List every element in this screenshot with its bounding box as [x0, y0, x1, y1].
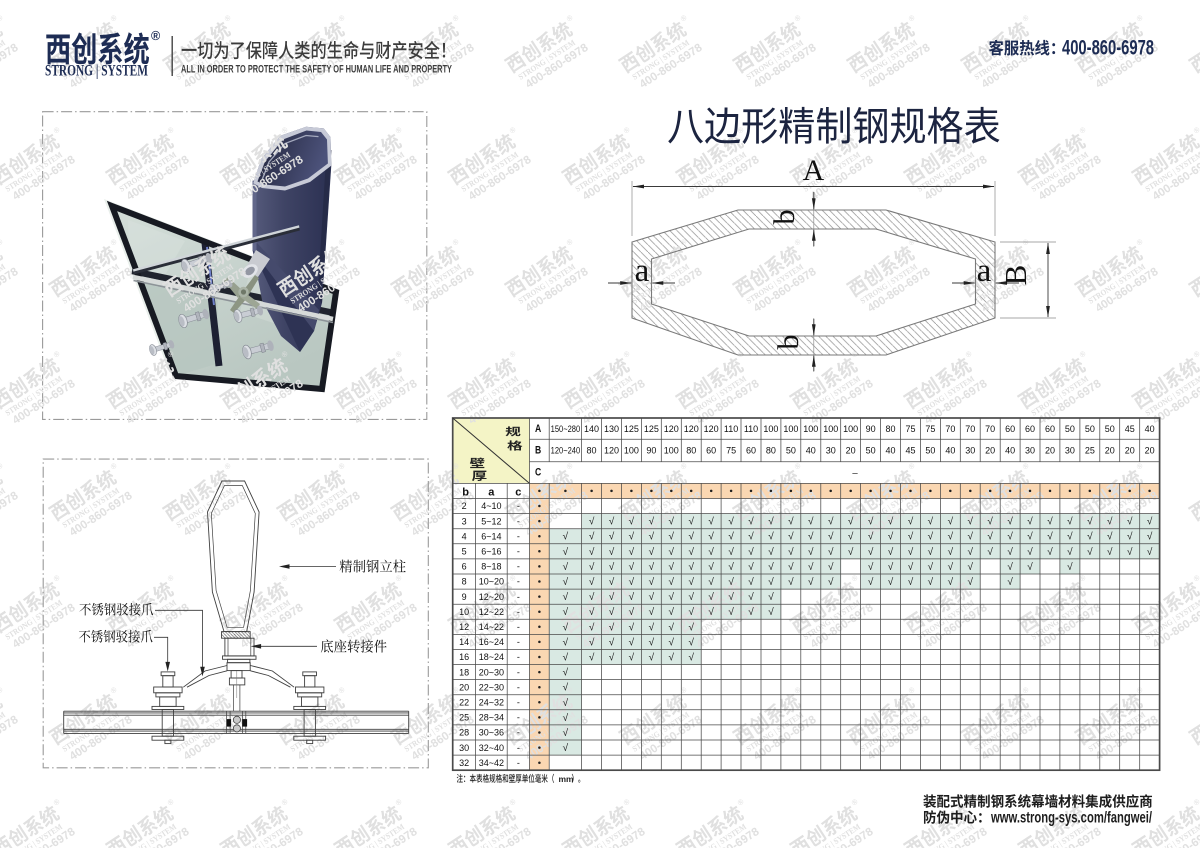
svg-text:120: 120 [664, 424, 679, 434]
svg-text:√: √ [629, 561, 635, 573]
svg-text:30~36: 30~36 [479, 728, 504, 738]
svg-text:18~24: 18~24 [479, 652, 504, 662]
svg-text:6: 6 [462, 562, 467, 572]
svg-text:30: 30 [965, 446, 975, 456]
svg-text:24~32: 24~32 [479, 697, 504, 707]
svg-text:20: 20 [1105, 446, 1115, 456]
svg-text:√: √ [928, 531, 934, 543]
svg-text:√: √ [708, 591, 714, 603]
svg-text:40: 40 [806, 446, 816, 456]
svg-text:√: √ [968, 576, 974, 588]
svg-text:ALL IN ORDER TO PROTECT THE SA: ALL IN ORDER TO PROTECT THE SAFETY OF HU… [181, 64, 452, 76]
svg-text:10~20: 10~20 [479, 577, 504, 587]
svg-text:√: √ [1067, 561, 1073, 573]
svg-text:√: √ [669, 516, 675, 528]
svg-text:√: √ [589, 576, 595, 588]
svg-text:√: √ [669, 591, 675, 603]
svg-text:√: √ [808, 546, 814, 558]
svg-text:45: 45 [1125, 424, 1135, 434]
svg-text:√: √ [768, 546, 774, 558]
svg-text:√: √ [1027, 546, 1033, 558]
svg-text:√: √ [609, 651, 615, 663]
svg-text:√: √ [808, 576, 814, 588]
svg-text:30: 30 [1065, 446, 1075, 456]
svg-text:100: 100 [803, 424, 818, 434]
svg-text:√: √ [649, 531, 655, 543]
svg-text:√: √ [563, 621, 569, 633]
svg-text:50: 50 [786, 446, 796, 456]
svg-text:18: 18 [459, 667, 469, 677]
svg-text:√: √ [1007, 561, 1013, 573]
svg-text:√: √ [708, 606, 714, 618]
svg-text:25: 25 [459, 713, 469, 723]
svg-text:√: √ [848, 546, 854, 558]
svg-text:√: √ [1147, 516, 1153, 528]
svg-text:c: c [515, 487, 521, 499]
svg-text:√: √ [1127, 516, 1133, 528]
svg-text:√: √ [649, 546, 655, 558]
svg-text:√: √ [908, 576, 914, 588]
svg-text:8~18: 8~18 [481, 562, 501, 572]
svg-text:6~16: 6~16 [481, 547, 501, 557]
svg-text:50: 50 [925, 446, 935, 456]
svg-text:√: √ [768, 561, 774, 573]
svg-text:22~30: 22~30 [479, 682, 504, 692]
svg-text:√: √ [1067, 516, 1073, 528]
svg-text:-: - [517, 728, 520, 738]
svg-text:√: √ [669, 531, 675, 543]
svg-text:√: √ [708, 531, 714, 543]
svg-text:-: - [517, 622, 520, 632]
svg-text:12~22: 12~22 [479, 607, 504, 617]
svg-text:√: √ [848, 531, 854, 543]
svg-text:-: - [517, 697, 520, 707]
svg-text:√: √ [1047, 516, 1053, 528]
svg-text:400-860-6978: 400-860-6978 [1062, 37, 1154, 60]
svg-text:√: √ [609, 546, 615, 558]
svg-text:√: √ [688, 561, 694, 573]
svg-text:√: √ [987, 516, 993, 528]
svg-text:√: √ [828, 546, 834, 558]
svg-text:√: √ [649, 561, 655, 573]
svg-text:√: √ [968, 561, 974, 573]
svg-text:√: √ [563, 591, 569, 603]
svg-text:50: 50 [866, 446, 876, 456]
svg-text:√: √ [987, 546, 993, 558]
svg-text:√: √ [828, 576, 834, 588]
svg-text:www.strong-sys.com/fangwei/: www.strong-sys.com/fangwei/ [990, 810, 1152, 827]
svg-text:√: √ [563, 606, 569, 618]
svg-text:√: √ [669, 546, 675, 558]
svg-text:√: √ [968, 531, 974, 543]
svg-text:√: √ [589, 621, 595, 633]
svg-text:√: √ [589, 606, 595, 618]
svg-text:20: 20 [846, 446, 856, 456]
svg-text:80: 80 [766, 446, 776, 456]
svg-text:20: 20 [459, 682, 469, 692]
svg-text:-: - [517, 592, 520, 602]
svg-text:√: √ [1047, 546, 1053, 558]
svg-text:a: a [977, 253, 992, 289]
svg-text:√: √ [768, 576, 774, 588]
svg-text:√: √ [1127, 531, 1133, 543]
svg-text:5: 5 [462, 547, 467, 557]
svg-text:√: √ [1007, 576, 1013, 588]
svg-text:16: 16 [459, 652, 469, 662]
svg-text:50: 50 [1065, 424, 1075, 434]
svg-text:√: √ [563, 727, 569, 739]
svg-text:130: 130 [604, 424, 619, 434]
svg-text:√: √ [609, 621, 615, 633]
svg-text:50: 50 [1105, 424, 1115, 434]
svg-text:40: 40 [886, 446, 896, 456]
svg-text:28: 28 [459, 728, 469, 738]
svg-text:√: √ [748, 516, 754, 528]
svg-text:√: √ [1007, 531, 1013, 543]
svg-text:√: √ [728, 546, 734, 558]
svg-text:√: √ [1147, 546, 1153, 558]
svg-text:20: 20 [985, 446, 995, 456]
svg-text:b: b [772, 335, 805, 350]
svg-text:150~280: 150~280 [551, 424, 581, 434]
svg-text:√: √ [1107, 546, 1113, 558]
svg-text:√: √ [649, 621, 655, 633]
svg-text:20: 20 [1125, 446, 1135, 456]
svg-text:√: √ [1007, 546, 1013, 558]
svg-text:125: 125 [624, 424, 639, 434]
svg-text:40: 40 [945, 446, 955, 456]
svg-text:√: √ [728, 561, 734, 573]
svg-text:√: √ [649, 591, 655, 603]
svg-text:20~30: 20~30 [479, 667, 504, 677]
svg-text:√: √ [563, 636, 569, 648]
svg-text:√: √ [788, 546, 794, 558]
svg-text:70: 70 [945, 424, 955, 434]
svg-text:√: √ [948, 561, 954, 573]
svg-text:125: 125 [644, 424, 659, 434]
svg-text:√: √ [708, 516, 714, 528]
svg-text:√: √ [888, 576, 894, 588]
svg-text:-: - [517, 501, 520, 511]
svg-text:√: √ [589, 561, 595, 573]
svg-text:√: √ [708, 561, 714, 573]
svg-text:√: √ [788, 531, 794, 543]
svg-text:110: 110 [724, 424, 738, 434]
svg-text:√: √ [908, 561, 914, 573]
svg-text:-: - [517, 652, 520, 662]
svg-text:√: √ [868, 516, 874, 528]
svg-text:4: 4 [462, 531, 467, 541]
svg-text:-: - [517, 637, 520, 647]
svg-text:2: 2 [462, 501, 467, 511]
svg-text:√: √ [688, 651, 694, 663]
svg-text:45: 45 [905, 446, 915, 456]
svg-text:6~14: 6~14 [481, 531, 501, 541]
svg-text:√: √ [1067, 546, 1073, 558]
svg-text:√: √ [669, 636, 675, 648]
svg-text:√: √ [768, 516, 774, 528]
svg-text:mm: mm [559, 774, 575, 784]
svg-text:√: √ [688, 576, 694, 588]
svg-text:16~24: 16~24 [479, 637, 504, 647]
svg-text:-: - [517, 547, 520, 557]
svg-text:C: C [535, 467, 541, 479]
svg-text:5~12: 5~12 [481, 516, 501, 526]
svg-text:√: √ [828, 516, 834, 528]
svg-text:√: √ [1107, 516, 1113, 528]
svg-text:√: √ [808, 516, 814, 528]
svg-text:√: √ [688, 546, 694, 558]
svg-text:√: √ [688, 606, 694, 618]
svg-text:14: 14 [459, 637, 469, 647]
svg-text:34~42: 34~42 [479, 758, 504, 768]
svg-text:√: √ [1087, 516, 1093, 528]
svg-text:√: √ [908, 546, 914, 558]
svg-text:√: √ [609, 561, 615, 573]
svg-text:√: √ [563, 531, 569, 543]
svg-text:3: 3 [462, 516, 467, 526]
svg-text:80: 80 [686, 446, 696, 456]
svg-text:-: - [517, 758, 520, 768]
svg-text:√: √ [563, 576, 569, 588]
svg-text:√: √ [748, 561, 754, 573]
svg-text:30: 30 [826, 446, 836, 456]
svg-text:B: B [535, 445, 541, 457]
svg-text:√: √ [629, 591, 635, 603]
svg-text:√: √ [728, 576, 734, 588]
svg-text:√: √ [609, 576, 615, 588]
svg-text:9: 9 [462, 592, 467, 602]
svg-text:8: 8 [462, 577, 467, 587]
svg-text:100: 100 [823, 424, 838, 434]
svg-text:80: 80 [587, 446, 597, 456]
svg-text:30: 30 [1025, 446, 1035, 456]
svg-text:√: √ [669, 606, 675, 618]
svg-text:√: √ [1027, 531, 1033, 543]
svg-text:√: √ [1027, 516, 1033, 528]
svg-text:√: √ [629, 621, 635, 633]
svg-text:-: - [517, 577, 520, 587]
svg-text:√: √ [1007, 516, 1013, 528]
svg-text:√: √ [888, 546, 894, 558]
svg-text:28~34: 28~34 [479, 713, 504, 723]
svg-text:70: 70 [965, 424, 975, 434]
svg-text:√: √ [629, 636, 635, 648]
svg-text:√: √ [1107, 531, 1113, 543]
svg-text:√: √ [708, 546, 714, 558]
svg-text:√: √ [868, 576, 874, 588]
svg-text:√: √ [1087, 546, 1093, 558]
svg-text:√: √ [948, 531, 954, 543]
svg-text:√: √ [609, 591, 615, 603]
svg-text:√: √ [688, 591, 694, 603]
svg-text:120~240: 120~240 [551, 446, 581, 456]
svg-text:-: - [517, 682, 520, 692]
svg-text:√: √ [828, 531, 834, 543]
svg-text:–: – [852, 468, 858, 479]
svg-text:60: 60 [746, 446, 756, 456]
svg-text:√: √ [649, 636, 655, 648]
svg-text:√: √ [563, 561, 569, 573]
svg-text:√: √ [748, 531, 754, 543]
svg-text:√: √ [669, 576, 675, 588]
svg-text:b: b [768, 210, 801, 225]
svg-text:√: √ [563, 682, 569, 694]
svg-text:√: √ [563, 712, 569, 724]
svg-text:√: √ [563, 546, 569, 558]
svg-text:√: √ [928, 576, 934, 588]
svg-text:60: 60 [1005, 424, 1015, 434]
svg-text:70: 70 [985, 424, 995, 434]
svg-text:√: √ [788, 561, 794, 573]
svg-text:√: √ [868, 561, 874, 573]
svg-text:75: 75 [726, 446, 736, 456]
svg-text:®: ® [151, 29, 161, 43]
svg-text:-: - [517, 562, 520, 572]
svg-text:90: 90 [866, 424, 876, 434]
svg-text:√: √ [948, 576, 954, 588]
svg-text:√: √ [808, 561, 814, 573]
svg-text:√: √ [629, 576, 635, 588]
svg-text:√: √ [609, 516, 615, 528]
svg-text:√: √ [629, 606, 635, 618]
svg-text:√: √ [688, 636, 694, 648]
svg-text:40: 40 [1145, 424, 1155, 434]
svg-text:√: √ [629, 531, 635, 543]
svg-text:√: √ [589, 531, 595, 543]
svg-text:b: b [462, 487, 469, 499]
svg-text:80: 80 [886, 424, 896, 434]
svg-text:√: √ [708, 576, 714, 588]
svg-text:√: √ [629, 516, 635, 528]
svg-text:√: √ [928, 516, 934, 528]
svg-text:40: 40 [1005, 446, 1015, 456]
svg-text:√: √ [589, 546, 595, 558]
svg-text:√: √ [669, 561, 675, 573]
svg-text:√: √ [728, 591, 734, 603]
svg-text:√: √ [728, 531, 734, 543]
svg-text:√: √ [649, 516, 655, 528]
svg-text:-: - [517, 743, 520, 753]
svg-text:a: a [635, 253, 650, 289]
svg-text:√: √ [748, 546, 754, 558]
svg-text:100: 100 [783, 424, 798, 434]
svg-text:-: - [517, 667, 520, 677]
svg-text:√: √ [688, 516, 694, 528]
svg-text:32: 32 [459, 758, 469, 768]
svg-text:√: √ [563, 697, 569, 709]
svg-text:√: √ [748, 606, 754, 618]
svg-text:√: √ [589, 636, 595, 648]
svg-text:-: - [517, 713, 520, 723]
svg-text:-: - [517, 516, 520, 526]
svg-text:√: √ [609, 606, 615, 618]
svg-text:√: √ [748, 576, 754, 588]
svg-text:√: √ [748, 591, 754, 603]
svg-text:120: 120 [704, 424, 719, 434]
svg-text:√: √ [868, 531, 874, 543]
svg-text:√: √ [563, 667, 569, 679]
svg-text:60: 60 [1025, 424, 1035, 434]
svg-text:100: 100 [763, 424, 778, 434]
svg-text:√: √ [888, 561, 894, 573]
svg-text:-: - [517, 607, 520, 617]
svg-text:√: √ [728, 606, 734, 618]
svg-text:-: - [517, 531, 520, 541]
svg-text:√: √ [649, 606, 655, 618]
svg-text:60: 60 [706, 446, 716, 456]
svg-text:75: 75 [905, 424, 915, 434]
svg-text:a: a [488, 487, 495, 499]
svg-text:√: √ [563, 651, 569, 663]
svg-text:√: √ [1067, 531, 1073, 543]
svg-text:90: 90 [646, 446, 656, 456]
svg-text:75: 75 [925, 424, 935, 434]
svg-text:25: 25 [1085, 446, 1095, 456]
svg-text:√: √ [987, 531, 993, 543]
svg-text:32~40: 32~40 [479, 743, 504, 753]
svg-text:√: √ [589, 591, 595, 603]
svg-text:√: √ [828, 561, 834, 573]
svg-text:√: √ [788, 576, 794, 588]
svg-text:30: 30 [459, 743, 469, 753]
svg-text:√: √ [768, 531, 774, 543]
svg-text:50: 50 [1085, 424, 1095, 434]
svg-text:√: √ [609, 636, 615, 648]
svg-text:100: 100 [624, 446, 639, 456]
svg-text:140: 140 [584, 424, 599, 434]
svg-text:√: √ [649, 576, 655, 588]
svg-text:√: √ [728, 516, 734, 528]
svg-text:√: √ [1147, 531, 1153, 543]
svg-text:√: √ [563, 742, 569, 754]
svg-text:√: √ [808, 531, 814, 543]
svg-text:12~20: 12~20 [479, 592, 504, 602]
svg-text:√: √ [1087, 531, 1093, 543]
svg-text:B: B [998, 265, 1033, 286]
svg-text:√: √ [908, 531, 914, 543]
svg-text:12: 12 [459, 622, 469, 632]
svg-text:√: √ [669, 621, 675, 633]
svg-text:√: √ [928, 561, 934, 573]
svg-text:√: √ [928, 546, 934, 558]
svg-text:√: √ [768, 606, 774, 618]
svg-text:√: √ [908, 516, 914, 528]
svg-text:√: √ [688, 621, 694, 633]
svg-text:√: √ [888, 531, 894, 543]
svg-text:60: 60 [1045, 424, 1055, 434]
svg-text:√: √ [948, 516, 954, 528]
svg-text:100: 100 [843, 424, 858, 434]
svg-text:110: 110 [744, 424, 758, 434]
svg-text:√: √ [669, 651, 675, 663]
svg-text:20: 20 [1045, 446, 1055, 456]
svg-text:√: √ [589, 516, 595, 528]
svg-text:√: √ [629, 651, 635, 663]
svg-text:22: 22 [459, 697, 469, 707]
svg-text:A: A [535, 423, 541, 435]
svg-text:√: √ [649, 651, 655, 663]
svg-text:10: 10 [459, 607, 469, 617]
svg-text:120: 120 [684, 424, 699, 434]
svg-text:STRONG | SYSTEM: STRONG | SYSTEM [45, 63, 148, 80]
svg-text:√: √ [589, 651, 595, 663]
svg-text:√: √ [768, 591, 774, 603]
svg-text:√: √ [629, 546, 635, 558]
svg-text:120: 120 [604, 446, 619, 456]
svg-text:20: 20 [1145, 446, 1155, 456]
svg-text:√: √ [688, 531, 694, 543]
